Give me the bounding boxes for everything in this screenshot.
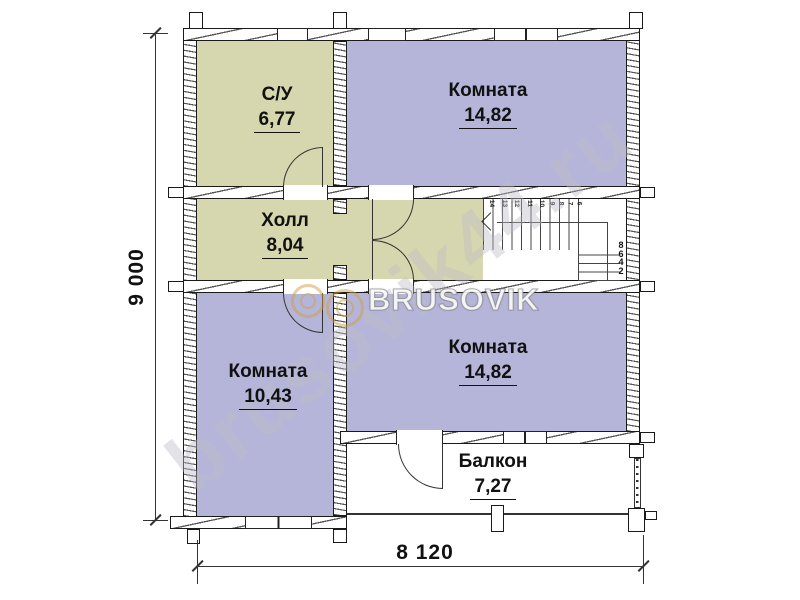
room-name: С/У [207, 84, 347, 106]
room-name: Комната [418, 337, 558, 359]
wall-outer-top [183, 28, 640, 41]
dimension-label-height: 9 000 [124, 244, 150, 310]
window-top-room [368, 28, 406, 41]
dimension-extension-line [143, 33, 168, 34]
door-opening-bathroom [283, 185, 328, 200]
room-label-bottom-room: Комната 14,82 [418, 337, 558, 386]
window-balcony-wall [503, 431, 547, 444]
log-end-tab [645, 511, 657, 520]
room-area: 14,82 [459, 105, 517, 129]
room-name: Балкон [423, 451, 563, 473]
balcony-post-center [491, 505, 504, 532]
stairs-lower-flight [578, 247, 620, 281]
room-name: Комната [198, 361, 338, 383]
room-label-top-room: Комната 14,82 [418, 80, 558, 129]
log-end-tab [333, 529, 347, 543]
door-opening-balcony [396, 430, 443, 445]
balcony-railing-right [634, 458, 641, 508]
dimension-extension-line [643, 535, 644, 584]
window-left-room [245, 516, 312, 529]
balcony-post-right-bottom [628, 508, 645, 532]
room-label-bathroom: С/У 6,77 [207, 84, 347, 133]
log-end-tab [629, 12, 643, 29]
room-area: 8,04 [262, 235, 309, 259]
room-area: 10,43 [239, 386, 297, 410]
log-end-tab [640, 281, 655, 292]
balcony-post-right-top [629, 444, 644, 458]
room-area: 14,82 [459, 362, 517, 386]
window-top-double [494, 28, 558, 41]
watermark-logo-ring-icon [300, 293, 316, 309]
window-bathroom [277, 28, 308, 41]
log-end-tab [168, 187, 184, 198]
dimension-label-width: 8 120 [365, 541, 485, 565]
dimension-line-horizontal [197, 566, 643, 567]
room-label-left-room: Комната 10,43 [198, 361, 338, 410]
log-end-tab [640, 187, 655, 198]
log-end-tab [640, 432, 655, 443]
room-name: Комната [418, 80, 558, 102]
room-label-hall: Холл 8,04 [215, 210, 355, 259]
watermark-logo-text: BRUSOVIK [368, 282, 588, 318]
wall-balcony-top [340, 431, 640, 444]
dimension-extension-line [197, 540, 198, 584]
door-opening-top-room [368, 185, 414, 200]
room-name: Холл [215, 210, 355, 232]
room-area: 6,77 [254, 109, 301, 133]
stairs-step-number: 2 [615, 267, 627, 276]
log-end-tab [189, 12, 203, 29]
room-label-balcony: Балкон 7,27 [423, 451, 563, 500]
floor-plan-canvas: 14 13 12 11 10 9 8 7 6 8 6 4 2 9 000 8 1… [0, 0, 800, 600]
room-area: 7,27 [470, 476, 517, 500]
log-end-tab [333, 12, 347, 29]
log-end-tab [168, 281, 184, 292]
watermark-logo-ring-icon [336, 299, 354, 317]
